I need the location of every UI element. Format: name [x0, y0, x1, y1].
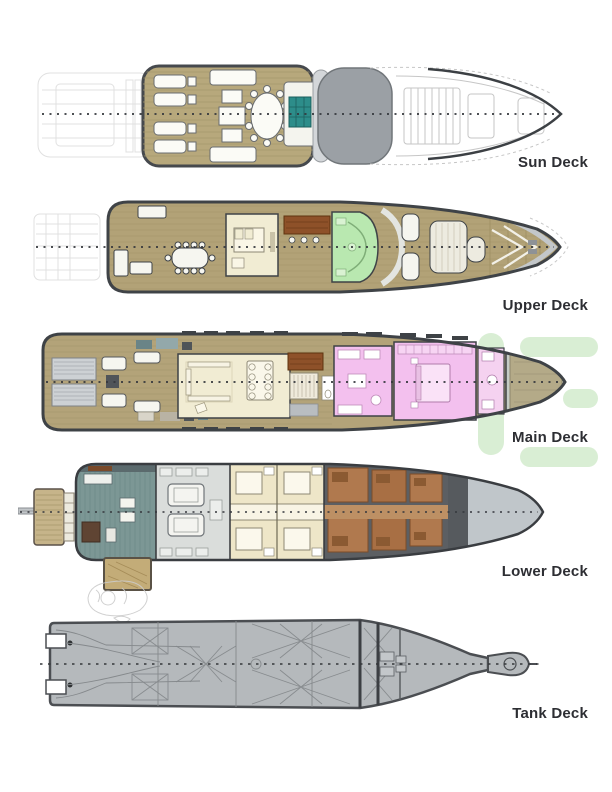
ghost-foredeck [370, 67, 552, 164]
master-bath [478, 348, 504, 414]
upper-deck-plan [30, 196, 605, 300]
deck-label-lower: Lower Deck [418, 563, 588, 580]
deck-label-sun: Sun Deck [418, 154, 588, 171]
sun-deck-structure [143, 66, 316, 166]
ghost-aft-deck [38, 73, 152, 157]
main-salon [178, 354, 290, 418]
side-passerelle [104, 558, 151, 590]
jacuzzi [284, 82, 316, 146]
master-stateroom [394, 342, 476, 420]
dining-table [247, 361, 273, 400]
swim-platform [34, 489, 74, 545]
radar-arch [318, 68, 392, 164]
lower-deck-plan [18, 458, 602, 628]
deck-label-upper: Upper Deck [418, 297, 588, 314]
skylounge [226, 214, 278, 276]
cocktail-table [246, 86, 289, 147]
wheelhouse [332, 212, 378, 282]
main-deck-plan [30, 328, 608, 436]
yacht-deck-plans-page: Sun Deck Upper Deck Main Deck Lower Deck… [0, 0, 612, 792]
deck-label-tank: Tank Deck [418, 705, 588, 722]
tank-deck-hull [50, 620, 488, 708]
galley [334, 346, 392, 416]
deck-label-main: Main Deck [418, 429, 588, 446]
bow-stores [468, 458, 602, 566]
